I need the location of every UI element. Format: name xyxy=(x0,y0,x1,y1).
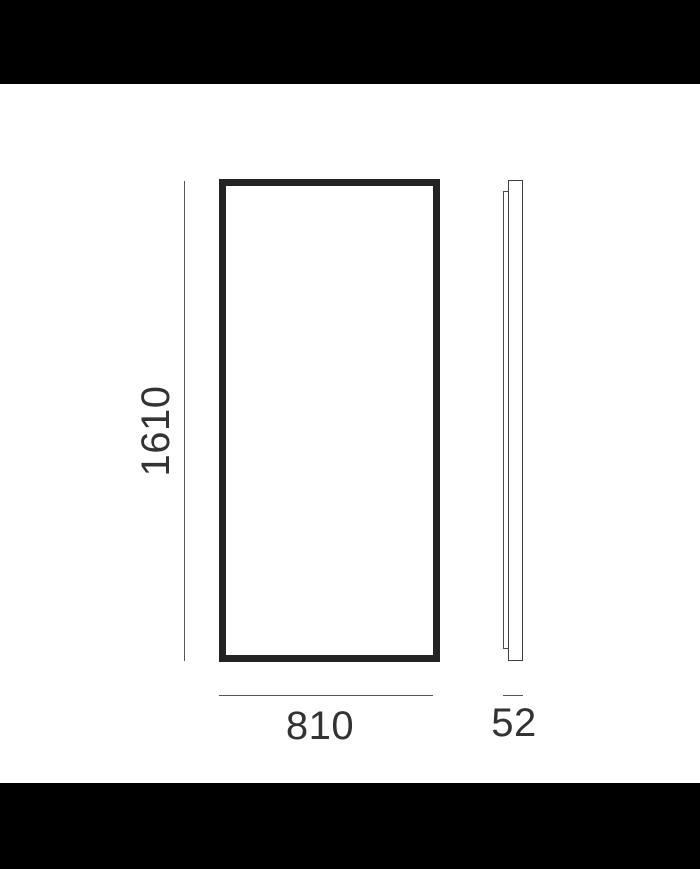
bottom-letterbox-band xyxy=(0,783,700,869)
height-dimension-line xyxy=(184,181,185,661)
front-view-outline xyxy=(219,179,440,662)
height-dimension-label: 1610 xyxy=(136,386,176,477)
side-view-body xyxy=(508,180,523,661)
screenshot-root: 1610 810 52 xyxy=(0,0,700,869)
width-dimension-label: 810 xyxy=(286,706,354,746)
drawing-area: 1610 810 52 xyxy=(0,84,700,783)
top-letterbox-band xyxy=(0,0,700,84)
depth-dimension-label: 52 xyxy=(491,703,537,743)
depth-dimension-line xyxy=(503,695,523,696)
width-dimension-line xyxy=(219,695,433,696)
